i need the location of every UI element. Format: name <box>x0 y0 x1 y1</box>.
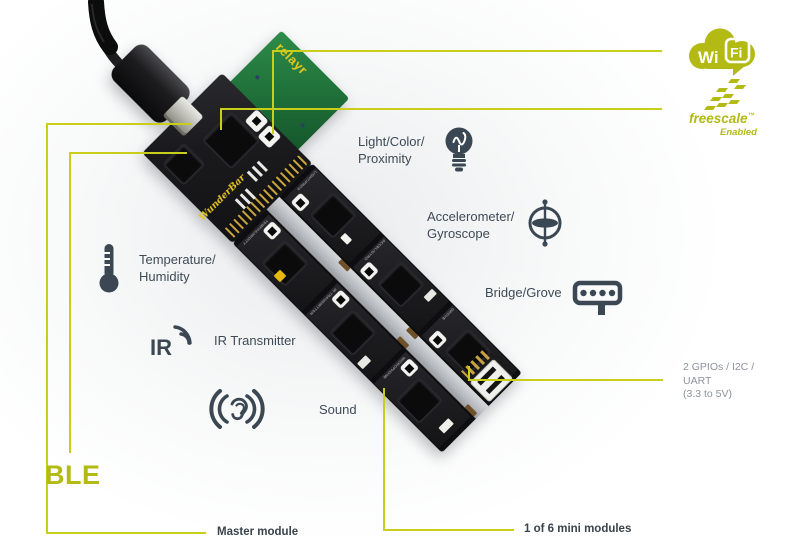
grove-connector-icon <box>572 280 624 316</box>
sensor-chip <box>380 263 422 305</box>
line-ble-v <box>69 152 71 453</box>
line-master-top <box>46 123 191 125</box>
line-mini-v <box>383 388 385 531</box>
freescale-enabled-text: Enabled <box>720 127 757 138</box>
sensor-chip <box>398 379 440 421</box>
ir-waves-icon <box>171 325 197 351</box>
smd-components <box>245 161 268 184</box>
label-master-module: Master module <box>217 525 298 540</box>
label-ir-transmitter: IR Transmitter <box>214 332 296 349</box>
label-gpio-uart: 2 GPIOs / I2C / UART (3.3 to 5V) <box>683 361 754 402</box>
smd <box>357 355 371 369</box>
line-wifi-h <box>272 50 662 52</box>
ble-chip <box>165 145 203 183</box>
led <box>340 233 352 245</box>
gyroscope-icon <box>522 197 568 249</box>
line-mini-h <box>383 529 514 531</box>
wifi-logo-fi: Fi <box>730 45 742 61</box>
freescale-logo-mark <box>704 79 748 112</box>
pcb-hole <box>255 74 261 80</box>
line-ble-h <box>69 152 187 154</box>
pcb-hole <box>300 122 306 128</box>
sensor-chip <box>312 194 354 236</box>
label-mini-modules: 1 of 6 mini modules <box>524 522 631 537</box>
line-wifi-v <box>272 50 274 134</box>
label-temperature-humidity: Temperature/ Humidity <box>139 251 216 285</box>
label-light-color-proximity: Light/Color/ Proximity <box>358 133 424 167</box>
line-freescale-v <box>220 108 222 130</box>
label-bridge-grove: Bridge/Grove <box>485 284 562 301</box>
line-gpio-h <box>468 379 663 381</box>
freescale-logo-text: freescale™ <box>689 111 755 126</box>
wifi-logo: Wi Fi <box>687 27 759 77</box>
ir-icon-text: IR <box>150 335 172 361</box>
sensor-chip <box>332 311 374 353</box>
smd <box>424 289 437 302</box>
light-bulb-icon <box>441 125 477 175</box>
label-ble: BLE <box>45 458 101 494</box>
smd <box>438 418 454 434</box>
thermometer-icon <box>96 242 122 294</box>
label-accelerometer-gyroscope: Accelerometer/ Gyroscope <box>427 208 514 242</box>
line-freescale-h <box>220 108 662 110</box>
relayr-silk-label: relayr <box>273 40 311 78</box>
sound-ear-icon <box>209 388 265 430</box>
label-sound: Sound <box>319 401 357 418</box>
line-master-bottom <box>46 532 206 534</box>
sensor-chip <box>264 242 306 284</box>
wunderbar-diagram: { "colors": { "accent_line": "#c9ce1a", … <box>0 0 800 558</box>
wifi-logo-wi: Wi <box>698 48 719 67</box>
